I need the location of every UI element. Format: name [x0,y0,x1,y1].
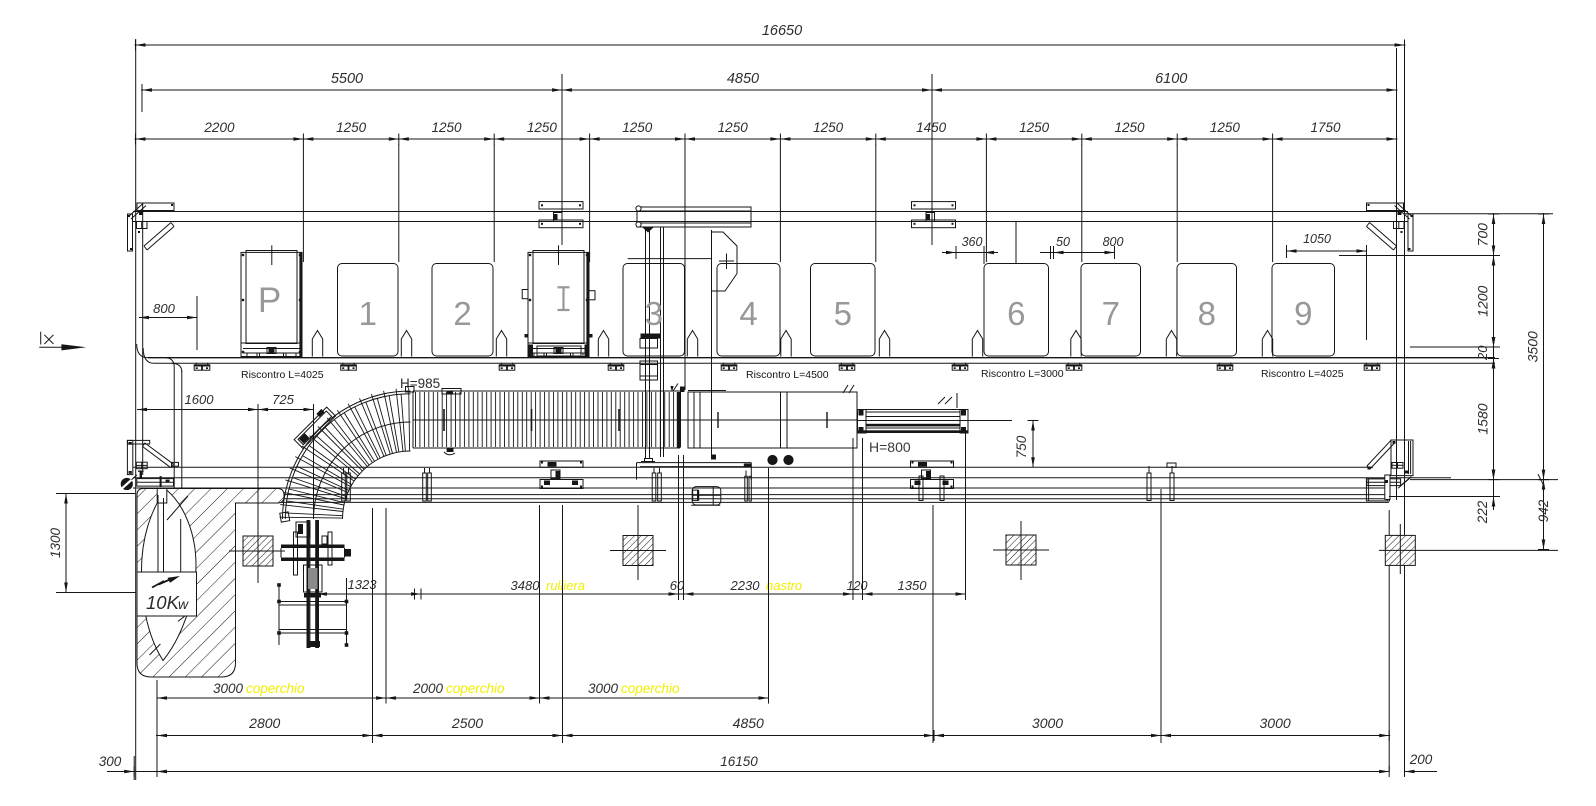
svg-text:coperchio: coperchio [246,681,305,696]
svg-text:1450: 1450 [916,120,947,135]
svg-text:750: 750 [1014,435,1029,458]
svg-text:6100: 6100 [1155,71,1187,87]
svg-text:4850: 4850 [727,71,759,87]
svg-text:1250: 1250 [1210,120,1241,135]
svg-text:2800: 2800 [248,715,280,731]
svg-text:1: 1 [359,295,377,332]
svg-text:3000: 3000 [588,681,619,696]
svg-text:16650: 16650 [762,23,802,39]
svg-text:H=800: H=800 [869,439,911,455]
svg-text:P: P [258,281,281,320]
svg-text:4850: 4850 [733,715,764,731]
svg-text:942: 942 [1536,499,1551,522]
svg-text:1250: 1250 [622,120,653,135]
svg-text:8: 8 [1198,295,1216,332]
svg-text:7: 7 [1102,295,1120,332]
svg-text:360: 360 [962,235,983,249]
svg-text:1250: 1250 [1114,120,1145,135]
svg-text:3480: 3480 [511,578,541,593]
svg-text:coperchio: coperchio [446,681,505,696]
svg-text:H=985: H=985 [400,376,440,391]
svg-text:2230: 2230 [730,578,761,593]
svg-text:3000: 3000 [1032,715,1063,731]
svg-text:1050: 1050 [1303,232,1331,246]
svg-text:1250: 1250 [813,120,844,135]
svg-text:Riscontro L=3000: Riscontro L=3000 [981,368,1064,380]
svg-text:rulliera: rulliera [546,578,585,593]
svg-text:2500: 2500 [451,715,483,731]
svg-text:2000: 2000 [412,681,444,696]
svg-text:1250: 1250 [718,120,749,135]
svg-text:200: 200 [1409,752,1433,767]
svg-text:5500: 5500 [331,71,363,87]
svg-text:3000: 3000 [1260,715,1291,731]
svg-text:725: 725 [272,392,294,407]
svg-text:1250: 1250 [1019,120,1050,135]
svg-text:800: 800 [153,301,175,316]
svg-text:Riscontro L=4025: Riscontro L=4025 [241,369,324,381]
svg-text:2200: 2200 [203,120,235,135]
svg-text:60: 60 [670,578,685,593]
svg-text:700: 700 [1475,223,1491,247]
svg-text:3500: 3500 [1525,331,1541,362]
svg-text:w: w [178,596,189,612]
svg-text:1250: 1250 [527,120,558,135]
svg-text:4: 4 [739,295,757,332]
svg-text:1250: 1250 [431,120,462,135]
svg-text:Riscontro L=4025: Riscontro L=4025 [1261,368,1344,380]
svg-text:120: 120 [847,579,868,593]
svg-text:6: 6 [1007,295,1025,332]
svg-text:16150: 16150 [720,754,758,769]
svg-text:300: 300 [99,754,122,769]
svg-text:222: 222 [1475,500,1490,524]
svg-text:2: 2 [453,295,471,332]
svg-text:5: 5 [834,295,852,332]
svg-text:1600: 1600 [185,392,215,407]
svg-text:1750: 1750 [1311,120,1342,135]
svg-text:1300: 1300 [48,527,63,558]
svg-text:coperchio: coperchio [621,681,680,696]
svg-text:1580: 1580 [1475,403,1491,434]
svg-text:1250: 1250 [336,120,367,135]
svg-text:10K: 10K [146,592,181,613]
svg-text:1350: 1350 [898,578,928,593]
svg-text:800: 800 [1103,235,1124,249]
svg-text:9: 9 [1294,295,1312,332]
svg-text:nastro: nastro [766,578,802,593]
svg-text:3000: 3000 [213,681,244,696]
svg-text:20: 20 [1475,345,1490,361]
svg-text:50: 50 [1056,235,1070,249]
svg-text:1200: 1200 [1475,285,1491,316]
svg-text:Riscontro L=4500: Riscontro L=4500 [746,369,829,381]
svg-text:3: 3 [645,295,663,332]
